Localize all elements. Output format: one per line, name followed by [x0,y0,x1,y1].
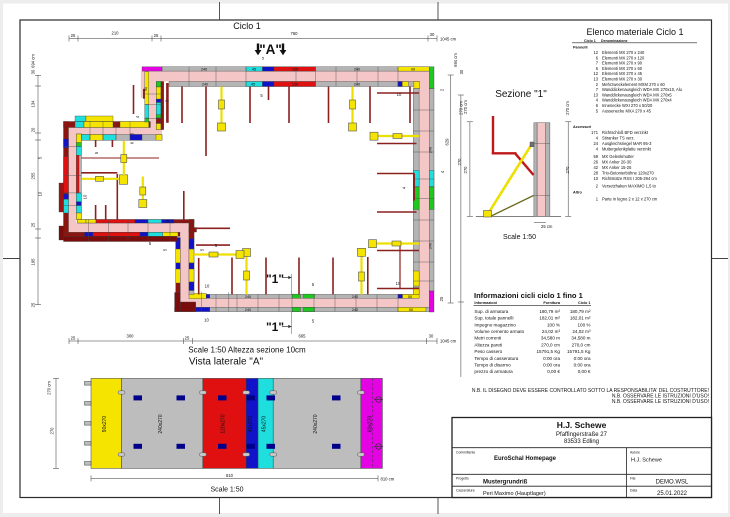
svg-text:30: 30 [31,69,36,74]
svg-text:Scale 1:50: Scale 1:50 [503,234,536,241]
svg-text:665: 665 [299,334,307,339]
svg-text:240: 240 [429,147,433,153]
svg-text:28: 28 [593,171,598,176]
svg-text:120: 120 [292,67,298,71]
svg-text:240: 240 [354,67,360,71]
svg-text:180,79 m²: 180,79 m² [570,309,591,314]
svg-text:694 cm: 694 cm [31,54,36,68]
svg-text:25: 25 [71,336,76,341]
svg-text:240: 240 [354,83,360,87]
svg-text:Elementi MX 270 x 30: Elementi MX 270 x 30 [602,77,643,82]
svg-text:Scale 1:50 Altezza sezione 1: Scale 1:50 Altezza sezione 10cm [188,346,306,355]
svg-text:25 cm: 25 cm [541,224,553,229]
svg-text:Ciclo 1: Ciclo 1 [578,301,590,305]
svg-text:H.J. Schewe: H.J. Schewe [557,420,607,430]
svg-text:Data: Data [630,488,637,492]
svg-text:90: 90 [411,67,415,71]
svg-text:0:00 ora: 0:00 ora [543,356,560,361]
svg-text:45: 45 [251,83,255,87]
svg-text:0:00 ora: 0:00 ora [574,363,591,368]
svg-text:Mustergrundriß: Mustergrundriß [483,480,528,486]
svg-text:Sup. di armatura: Sup. di armatura [474,309,508,314]
svg-text:File: File [630,477,636,481]
svg-text:240x270: 240x270 [158,414,164,433]
svg-text:Mehrzweckelement MXM 270 x 60: Mehrzweckelement MXM 270 x 60 [602,82,666,87]
svg-text:MX Gelenkmutter: MX Gelenkmutter [602,154,634,159]
svg-text:24,02 m³: 24,02 m³ [572,329,591,334]
svg-text:Informazioni cicli ciclo 1 fi: Informazioni cicli ciclo 1 fino 1 [474,291,583,300]
svg-text:Trio-Betonierbühne 120x270: Trio-Betonierbühne 120x270 [602,171,654,176]
svg-text:270,0 cm: 270,0 cm [572,342,591,347]
svg-text:Autore: Autore [630,451,640,455]
svg-text:100 %: 100 % [577,322,590,327]
svg-text:0,00 €: 0,00 € [547,369,560,374]
svg-text:Stiranker TS verz.: Stiranker TS verz. [602,135,635,140]
svg-text:270: 270 [457,158,462,166]
svg-text:MX Anker 20-30: MX Anker 20-30 [602,159,632,164]
svg-text:Elenco materiale Ciclo 1: Elenco materiale Ciclo 1 [586,27,683,37]
svg-text:50: 50 [408,295,412,299]
svg-text:13: 13 [593,92,598,97]
svg-text:180,79 m²: 180,79 m² [539,309,560,314]
svg-text:240: 240 [202,83,208,87]
svg-text:45: 45 [252,67,256,71]
svg-text:Peri Maximo (Hauptlager): Peri Maximo (Hauptlager) [483,491,546,497]
svg-text:"1": "1" [266,272,284,286]
svg-text:Pannelli: Pannelli [573,46,588,50]
svg-text:171: 171 [591,130,599,135]
svg-text:Volume cemento armato: Volume cemento armato [474,329,524,334]
svg-text:10: 10 [82,194,87,199]
svg-text:210: 210 [112,31,120,36]
svg-text:Parte in legno 2 x 12 x 270 cm: Parte in legno 2 x 12 x 270 cm [602,197,658,202]
svg-text:13: 13 [593,77,598,82]
svg-text:Ausgleichsriegel MAR 95-3: Ausgleichsriegel MAR 95-3 [602,141,652,146]
svg-text:240x270: 240x270 [313,414,319,433]
svg-text:Pfaffingerstraße 27: Pfaffingerstraße 27 [556,432,608,438]
svg-text:26: 26 [593,159,598,164]
svg-text:42: 42 [593,165,598,170]
svg-text:59: 59 [593,154,598,159]
svg-text:Altro: Altro [573,190,583,194]
svg-text:10: 10 [204,318,209,323]
svg-text:100 %: 100 % [547,322,560,327]
svg-text:1045 cm: 1045 cm [440,339,457,344]
svg-text:810 cm: 810 cm [381,476,395,481]
svg-text:1045 cm: 1045 cm [440,37,457,42]
svg-text:10: 10 [396,281,401,286]
svg-text:45x270: 45x270 [262,416,268,433]
svg-text:Elementi MX 270 x 240: Elementi MX 270 x 240 [602,50,645,55]
svg-text:240: 240 [352,308,358,312]
svg-text:30: 30 [459,69,464,74]
svg-text:Altezza pareti: Altezza pareti [474,342,502,347]
svg-text:83533 Edling: 83533 Edling [564,439,599,445]
svg-text:Sup. totale pannelli: Sup. totale pannelli [474,316,513,321]
svg-text:60x270: 60x270 [368,416,374,433]
svg-text:0:00 ora: 0:00 ora [574,356,591,361]
svg-text:Muttergelenkplatte verzinkt: Muttergelenkplatte verzinkt [602,147,652,152]
svg-text:Aussenecke MXA 270 x 45: Aussenecke MXA 270 x 45 [602,108,652,113]
svg-text:DEMO.WSL: DEMO.WSL [656,480,689,486]
svg-text:Informazioni: Informazioni [474,301,497,305]
svg-text:240: 240 [245,295,251,299]
svg-text:Metri correnti: Metri correnti [474,336,501,341]
svg-text:0,00 €: 0,00 € [578,369,591,374]
svg-text:EuroSchal Homepage: EuroSchal Homepage [494,456,557,462]
svg-text:240: 240 [245,308,251,312]
svg-text:240: 240 [429,243,433,249]
svg-text:694 cm: 694 cm [453,53,458,67]
svg-text:Sezione "1": Sezione "1" [495,89,547,100]
svg-text:Vista laterale "A": Vista laterale "A" [189,357,264,368]
svg-text:Versetzhaken MAXIMO 1,5 to: Versetzhaken MAXIMO 1,5 to [602,184,657,189]
svg-text:134: 134 [31,100,36,108]
svg-text:N.B. OSSERVARE LE ISTRUZIONI D: N.B. OSSERVARE LE ISTRUZIONI D'USO! [612,399,709,405]
svg-text:45x270: 45x270 [248,416,254,433]
svg-text:Denominazione: Denominazione [601,39,628,43]
svg-text:34,580 m: 34,580 m [571,336,590,341]
svg-text:240: 240 [352,295,358,299]
svg-text:Fornitura: Fornitura [543,301,561,305]
svg-text:760: 760 [291,31,299,36]
svg-text:182,01 m²: 182,01 m² [539,316,560,321]
svg-text:Tempo di disarmo: Tempo di disarmo [474,363,511,368]
svg-text:10: 10 [205,284,210,289]
svg-text:prezzo di armatura: prezzo di armatura [474,369,513,374]
svg-text:Progetto: Progetto [456,477,469,481]
svg-text:H.J. Schewe: H.J. Schewe [631,458,662,464]
svg-text:Richtstütze RSS I 205-294 cm: Richtstütze RSS I 205-294 cm [602,176,657,181]
svg-text:270 cm: 270 cm [565,101,570,115]
svg-text:Wanddickenausgleich WDA MX 270: Wanddickenausgleich WDA MX 270x5 [602,92,672,97]
svg-text:10: 10 [397,92,402,97]
svg-text:0:00 ora: 0:00 ora [543,363,560,368]
svg-text:Elementi MX 270 x 120: Elementi MX 270 x 120 [602,55,645,60]
svg-text:270: 270 [463,166,468,174]
svg-text:300: 300 [127,334,135,339]
svg-text:25: 25 [71,33,76,38]
svg-text:15791,5 Kg: 15791,5 Kg [536,349,560,354]
svg-text:Wanddickenausgleich WDA MX 270: Wanddickenausgleich WDA MX 270x10, Alu [602,87,682,92]
svg-text:240: 240 [201,67,207,71]
svg-text:34,580 m: 34,580 m [541,336,560,341]
svg-text:Elementi MX 270 x 60: Elementi MX 270 x 60 [602,66,643,71]
svg-text:255: 255 [31,172,36,180]
svg-text:120: 120 [292,83,298,87]
svg-text:24: 24 [593,141,598,146]
svg-text:Innenecke WXI 270 x 50/20: Innenecke WXI 270 x 50/20 [602,103,653,108]
svg-text:30: 30 [429,334,434,339]
svg-text:50: 50 [166,220,170,224]
svg-text:182,01 m²: 182,01 m² [570,316,591,321]
svg-text:25: 25 [154,33,159,38]
svg-text:30: 30 [430,32,435,37]
svg-text:195: 195 [31,258,36,266]
svg-text:90: 90 [144,87,148,91]
svg-text:629: 629 [445,138,450,146]
svg-text:25: 25 [31,302,36,307]
svg-text:10: 10 [38,191,43,196]
svg-text:25: 25 [185,336,190,341]
svg-text:810: 810 [226,473,234,478]
svg-text:20: 20 [31,127,36,132]
svg-text:24,02 m³: 24,02 m³ [542,329,561,334]
svg-text:"1": "1" [266,320,284,334]
svg-text:Richtschloß BFD verzinkt: Richtschloß BFD verzinkt [602,130,649,135]
svg-text:120x270: 120x270 [221,414,227,433]
svg-text:50: 50 [409,308,413,312]
svg-text:25: 25 [31,222,36,227]
svg-text:Ciclo 1: Ciclo 1 [584,39,596,43]
svg-text:MX Anker 15-25: MX Anker 15-25 [602,165,632,170]
svg-text:270 cm: 270 cm [463,100,468,114]
svg-text:25.01.2022: 25.01.2022 [657,491,688,497]
svg-text:Accessori: Accessori [573,125,591,129]
svg-text:270,0 cm: 270,0 cm [541,342,560,347]
svg-text:Ciclo 1: Ciclo 1 [233,21,261,31]
svg-text:Peso cassero: Peso cassero [474,349,502,354]
svg-text:90x270: 90x270 [102,416,108,433]
svg-text:270: 270 [50,427,55,435]
svg-text:15791,5 Kg: 15791,5 Kg [567,349,591,354]
svg-text:Elementi MX 270 x 45: Elementi MX 270 x 45 [602,71,643,76]
svg-text:Casseratura: Casseratura [456,488,475,492]
svg-text:Committente: Committente [456,451,475,455]
svg-text:270 cm: 270 cm [47,381,52,395]
svg-text:Elementi MX 270 x 90: Elementi MX 270 x 90 [602,61,643,66]
svg-text:"A": "A" [259,42,282,57]
svg-text:5: 5 [262,57,264,61]
svg-text:270: 270 [565,166,570,174]
svg-text:10: 10 [593,176,598,181]
svg-text:Tempo di casseratura: Tempo di casseratura [474,356,518,361]
svg-text:Scale 1:50: Scale 1:50 [210,487,243,494]
svg-text:25: 25 [439,296,444,301]
svg-text:Impegno magazzino: Impegno magazzino [474,322,516,327]
svg-text:12: 12 [593,50,598,55]
svg-text:Wanddickenausgleich WDA MX 270: Wanddickenausgleich WDA MX 270x4 [602,98,672,103]
svg-text:12: 12 [593,71,598,76]
